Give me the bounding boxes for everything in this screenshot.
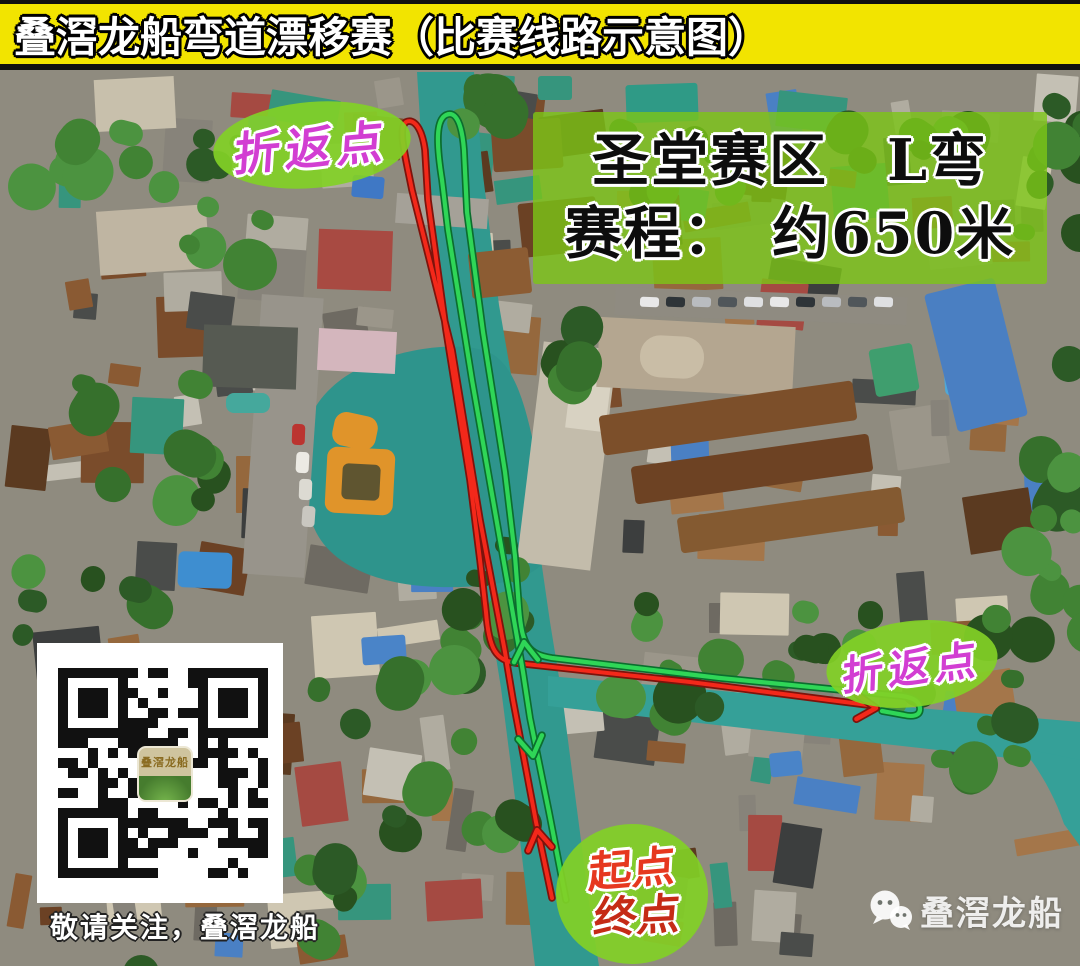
turnaround-top-label: 折返点 xyxy=(232,105,392,185)
qr-module xyxy=(218,668,228,678)
finish-label: 终点 xyxy=(592,893,682,942)
qr-module xyxy=(58,708,68,718)
qr-module xyxy=(188,668,198,678)
qr-module xyxy=(118,678,128,688)
qr-caption: 敬请关注，叠滘龙船 xyxy=(50,906,320,946)
qr-module xyxy=(118,718,128,728)
qr-module xyxy=(138,818,148,828)
qr-module xyxy=(138,848,148,858)
start-finish-badge: 起点 终点 xyxy=(556,824,708,964)
qr-module xyxy=(188,678,198,688)
qr-module xyxy=(218,838,228,848)
qr-module xyxy=(258,818,268,828)
qr-module xyxy=(88,828,98,838)
qr-module xyxy=(218,688,228,698)
qr-module xyxy=(198,738,208,748)
qr-module xyxy=(238,868,248,878)
qr-module xyxy=(78,828,88,838)
qr-module xyxy=(228,778,238,788)
qr-module xyxy=(258,668,268,678)
qr-module xyxy=(228,858,238,868)
qr-module xyxy=(248,788,258,798)
qr-module xyxy=(148,808,158,818)
qr-module xyxy=(238,698,248,708)
qr-module xyxy=(58,858,68,868)
qr-module xyxy=(198,678,208,688)
qr-module xyxy=(168,828,178,838)
poster-title: 叠滘龙船弯道漂移赛（比赛线路示意图） xyxy=(14,4,770,65)
qr-module xyxy=(228,728,238,738)
qr-module xyxy=(208,818,218,828)
qr-module xyxy=(98,798,108,808)
qr-module xyxy=(118,858,128,868)
qr-module xyxy=(258,698,268,708)
race-info-box: 圣堂赛区 L弯 赛程： 约650米 xyxy=(533,112,1047,284)
qr-module xyxy=(108,728,118,738)
qr-module xyxy=(138,828,148,838)
qr-module xyxy=(148,708,158,718)
qr-module xyxy=(118,728,128,738)
qr-module xyxy=(58,788,68,798)
qr-module xyxy=(108,868,118,878)
qr-module xyxy=(118,798,128,808)
qr-module xyxy=(128,688,138,698)
qr-module xyxy=(138,718,148,728)
qr-module xyxy=(218,808,228,818)
qr-module xyxy=(198,728,208,738)
qr-module xyxy=(98,808,108,818)
qr-module xyxy=(218,748,228,758)
qr-module xyxy=(78,868,88,878)
qr-module xyxy=(228,668,238,678)
qr-module xyxy=(158,688,168,698)
qr-module xyxy=(228,708,238,718)
qr-module xyxy=(188,708,198,718)
qr-module xyxy=(108,748,118,758)
qr-module xyxy=(188,848,198,858)
qr-module xyxy=(78,688,88,698)
qr-module xyxy=(228,788,238,798)
qr-module xyxy=(168,838,178,848)
qr-module xyxy=(178,708,188,718)
qr-module xyxy=(148,818,158,828)
qr-module xyxy=(78,838,88,848)
qr-module xyxy=(248,818,258,828)
qr-module xyxy=(248,728,258,738)
qr-module xyxy=(258,758,268,768)
qr-module xyxy=(248,848,258,858)
qr-module xyxy=(118,828,128,838)
aerial-map: 折返点 折返点 起点 终点 圣堂赛区 L弯 赛程： 约650米 叠滘龙船 敬请关… xyxy=(0,0,1080,966)
qr-module xyxy=(98,668,108,678)
qr-module xyxy=(78,698,88,708)
qr-module xyxy=(258,678,268,688)
qr-logo-text: 叠滘龙船 xyxy=(141,754,189,770)
qr-module xyxy=(118,708,128,718)
qr-module xyxy=(98,788,108,798)
qr-module xyxy=(78,738,88,748)
qr-module xyxy=(98,848,108,858)
qr-module xyxy=(148,868,158,878)
qr-module xyxy=(128,818,138,828)
qr-module xyxy=(78,728,88,738)
qr-module xyxy=(228,698,238,708)
start-label: 起点 xyxy=(587,845,676,897)
qr-module xyxy=(258,728,268,738)
qr-module xyxy=(58,758,68,768)
qr-module xyxy=(198,758,208,768)
qr-module xyxy=(158,708,168,718)
qr-module xyxy=(258,828,268,838)
qr-module xyxy=(258,688,268,698)
qr-module xyxy=(118,838,128,848)
qr-module xyxy=(98,688,108,698)
qr-module xyxy=(118,868,128,878)
qr-code: 叠滘龙船 xyxy=(37,643,283,903)
qr-module xyxy=(228,798,238,808)
qr-module xyxy=(108,808,118,818)
qr-module xyxy=(98,778,108,788)
qr-module xyxy=(68,738,78,748)
qr-module xyxy=(148,718,158,728)
qr-module xyxy=(78,808,88,818)
qr-module xyxy=(218,698,228,708)
qr-logo-art xyxy=(139,776,191,800)
qr-module xyxy=(98,768,108,778)
qr-module xyxy=(248,798,258,808)
qr-module xyxy=(88,668,98,678)
qr-module xyxy=(118,818,128,828)
qr-module xyxy=(118,768,128,778)
qr-module xyxy=(178,818,188,828)
qr-module xyxy=(68,728,78,738)
qr-module xyxy=(208,798,218,808)
qr-module xyxy=(68,808,78,818)
qr-module xyxy=(128,718,138,728)
watermark-text: 叠滘龙船 xyxy=(920,886,1064,935)
race-route-poster: 折返点 折返点 起点 终点 圣堂赛区 L弯 赛程： 约650米 叠滘龙船 敬请关… xyxy=(0,0,1080,966)
qr-module xyxy=(258,778,268,788)
qr-module xyxy=(88,848,98,858)
qr-module xyxy=(58,828,68,838)
qr-module xyxy=(198,698,208,708)
qr-module xyxy=(58,668,68,678)
qr-module xyxy=(58,688,68,698)
qr-center-logo: 叠滘龙船 xyxy=(137,746,193,802)
qr-module xyxy=(108,798,118,808)
qr-module xyxy=(138,728,148,738)
qr-module xyxy=(218,868,228,878)
qr-module xyxy=(88,808,98,818)
qr-module xyxy=(228,688,238,698)
qr-module xyxy=(128,868,138,878)
qr-module xyxy=(168,728,178,738)
race-zone-line: 圣堂赛区 L弯 xyxy=(592,125,988,198)
watermark: 叠滘龙船 xyxy=(868,886,1064,935)
qr-module xyxy=(238,728,248,738)
qr-module xyxy=(128,668,138,678)
turnaround-right-label: 折返点 xyxy=(841,625,983,703)
qr-module xyxy=(68,758,78,768)
qr-module xyxy=(118,668,128,678)
qr-module xyxy=(158,668,168,678)
qr-module xyxy=(198,798,208,808)
qr-module xyxy=(238,688,248,698)
qr-module xyxy=(88,758,98,768)
qr-module xyxy=(68,868,78,878)
qr-module xyxy=(188,828,198,838)
qr-module xyxy=(118,808,128,818)
qr-module xyxy=(58,848,68,858)
qr-module xyxy=(178,728,188,738)
qr-module xyxy=(238,708,248,718)
qr-module xyxy=(78,668,88,678)
qr-module xyxy=(178,828,188,838)
qr-module xyxy=(258,708,268,718)
qr-module xyxy=(58,678,68,688)
qr-module xyxy=(248,668,258,678)
qr-module xyxy=(258,798,268,808)
qr-module xyxy=(58,698,68,708)
qr-module xyxy=(118,848,128,858)
qr-module xyxy=(88,748,98,758)
qr-module xyxy=(148,668,158,678)
qr-module xyxy=(228,818,238,828)
qr-module xyxy=(198,668,208,678)
qr-module xyxy=(108,778,118,788)
qr-module xyxy=(118,698,128,708)
qr-module xyxy=(58,808,68,818)
qr-module xyxy=(58,738,68,748)
qr-module xyxy=(98,868,108,878)
qr-module xyxy=(238,838,248,848)
qr-module xyxy=(88,868,98,878)
qr-module xyxy=(218,778,228,788)
qr-module xyxy=(138,698,148,708)
qr-module xyxy=(138,808,148,818)
qr-module xyxy=(88,688,98,698)
qr-module xyxy=(228,828,238,838)
qr-module xyxy=(228,838,238,848)
qr-module xyxy=(218,768,228,778)
qr-module xyxy=(208,868,218,878)
qr-module xyxy=(68,668,78,678)
wechat-icon xyxy=(868,890,914,932)
qr-module xyxy=(58,728,68,738)
qr-module xyxy=(198,688,208,698)
qr-module xyxy=(198,828,208,838)
qr-module xyxy=(128,838,138,848)
qr-module xyxy=(198,708,208,718)
qr-module xyxy=(88,838,98,848)
qr-module xyxy=(208,748,218,758)
qr-module xyxy=(228,748,238,758)
qr-module xyxy=(108,668,118,678)
qr-module xyxy=(98,828,108,838)
qr-module xyxy=(58,718,68,728)
qr-module xyxy=(218,728,228,738)
qr-module xyxy=(258,848,268,858)
qr-module xyxy=(258,838,268,848)
qr-module xyxy=(158,838,168,848)
qr-module xyxy=(148,838,158,848)
qr-module xyxy=(78,768,88,778)
qr-module xyxy=(58,838,68,848)
qr-module xyxy=(58,868,68,878)
qr-module xyxy=(88,708,98,718)
qr-module xyxy=(98,728,108,738)
qr-module xyxy=(78,708,88,718)
qr-module xyxy=(228,768,238,778)
qr-module xyxy=(208,728,218,738)
qr-module xyxy=(248,748,258,758)
qr-module xyxy=(88,698,98,708)
qr-module xyxy=(198,718,208,728)
qr-module xyxy=(198,748,208,758)
qr-module xyxy=(218,818,228,828)
qr-module xyxy=(218,708,228,718)
title-bar: 叠滘龙船弯道漂移赛（比赛线路示意图） xyxy=(0,0,1080,70)
qr-module xyxy=(98,698,108,708)
qr-module xyxy=(128,848,138,858)
qr-module xyxy=(248,838,258,848)
race-distance-line: 赛程： 约650米 xyxy=(565,198,1015,271)
qr-module xyxy=(118,688,128,698)
qr-module xyxy=(68,788,78,798)
qr-module xyxy=(58,818,68,828)
qr-module xyxy=(238,668,248,678)
qr-module xyxy=(128,728,138,738)
qr-module xyxy=(168,818,178,828)
qr-module xyxy=(88,728,98,738)
qr-module xyxy=(148,848,158,858)
qr-module xyxy=(138,868,148,878)
qr-module xyxy=(128,738,138,748)
qr-module xyxy=(78,848,88,858)
qr-module xyxy=(68,768,78,778)
qr-module xyxy=(208,668,218,678)
qr-module xyxy=(218,738,228,748)
qr-module xyxy=(158,818,168,828)
qr-module xyxy=(98,708,108,718)
qr-module xyxy=(238,768,248,778)
qr-module xyxy=(98,838,108,848)
qr-module xyxy=(258,718,268,728)
qr-module xyxy=(218,758,228,768)
qr-module xyxy=(118,738,128,748)
qr-module xyxy=(258,768,268,778)
